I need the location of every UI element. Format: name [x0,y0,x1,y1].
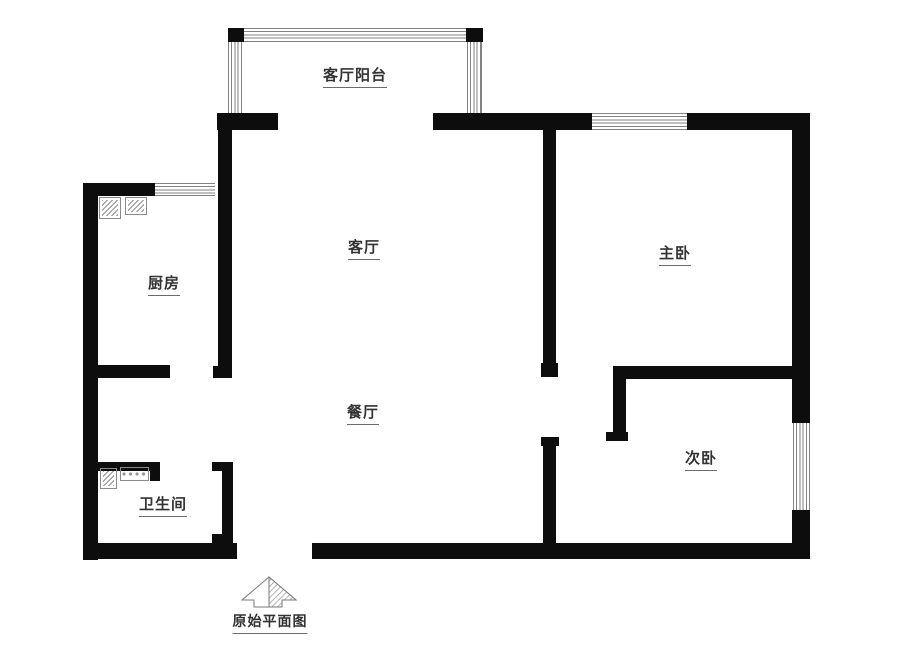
wall-center-upper-endcap [541,363,558,377]
wall-bathroom-right [222,471,233,534]
kitchen-stove-icon [99,197,121,219]
wall-second-bedroom-left [613,366,626,432]
wall-top-living [433,113,592,130]
floor-plan: 客厅阳台 客厅 厨房 主卧 餐厅 卫生间 次卧 原始平面图 [0,0,900,654]
wall-center-lower [543,446,556,558]
kitchen-window [155,183,215,196]
master-bedroom-window-top [592,113,687,130]
balcony-window-right [467,42,482,113]
wall-bathroom-top-endcap [150,462,160,481]
wall-bottom-right [312,543,810,559]
balcony-corner-post-left [228,28,244,42]
balcony-window-top [244,28,466,42]
balcony-window-left [228,42,242,113]
wall-bathroom-right-stub [212,462,233,471]
wall-bottom-left [83,543,237,559]
wall-kitchen-bottom [97,365,170,378]
kitchen-sink-icon [125,197,147,215]
room-label-bathroom: 卫生间 [139,493,187,517]
wall-center-lower-endcap [541,437,559,446]
wall-bedroom-divider [613,366,792,379]
room-label-dining-room: 餐厅 [347,401,379,425]
wall-second-bedroom-left-endcap [606,432,628,441]
second-bedroom-window [793,423,810,510]
room-label-living-room: 客厅 [348,236,380,260]
room-label-master-bedroom: 主卧 [659,242,691,266]
wall-outer-right-upper [792,113,810,423]
wall-kitchen-top [83,183,155,196]
wall-outer-left [83,183,98,560]
wall-center-upper [543,130,556,363]
bathroom-basin-icon [120,467,149,481]
room-label-balcony: 客厅阳台 [323,64,387,88]
plan-caption: 原始平面图 [233,611,308,634]
wall-bathroom-right-foot [212,534,233,544]
room-label-second-bedroom: 次卧 [685,447,717,471]
wall-kitchen-right-endcap [213,366,232,378]
room-label-kitchen: 厨房 [148,272,180,296]
bathroom-toilet-icon [100,468,117,489]
balcony-corner-post-right [466,28,483,42]
wall-kitchen-right [218,113,232,368]
north-arrow-icon [240,576,298,609]
